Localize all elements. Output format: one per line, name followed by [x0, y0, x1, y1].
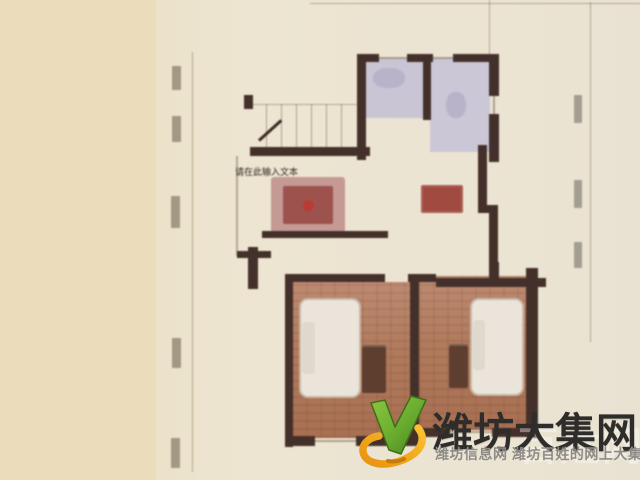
daji-v-logo-icon	[358, 392, 430, 468]
watermark-tagline: 潍坊信息网 潍坊百姓的网上大集	[435, 444, 640, 464]
floorplan-photo: 请在此输入文本 百姓网 潍坊大集网 潍	[0, 0, 640, 480]
site-watermark: 百姓网 潍坊大集网 潍坊信息网 潍坊百姓的网上大集	[0, 0, 640, 480]
